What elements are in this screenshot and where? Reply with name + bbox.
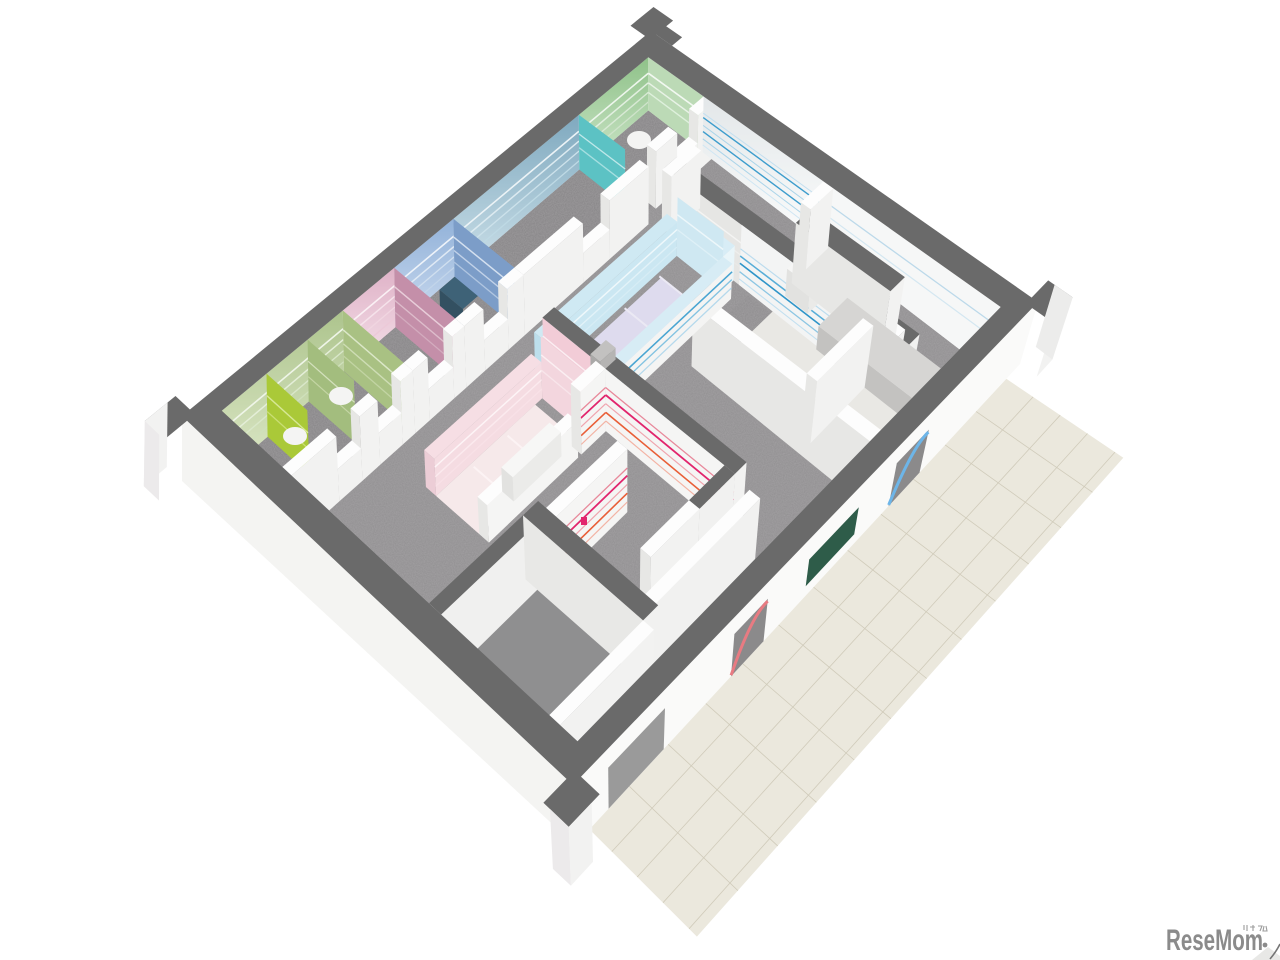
svg-text:ReseMom: ReseMom (1166, 924, 1263, 957)
